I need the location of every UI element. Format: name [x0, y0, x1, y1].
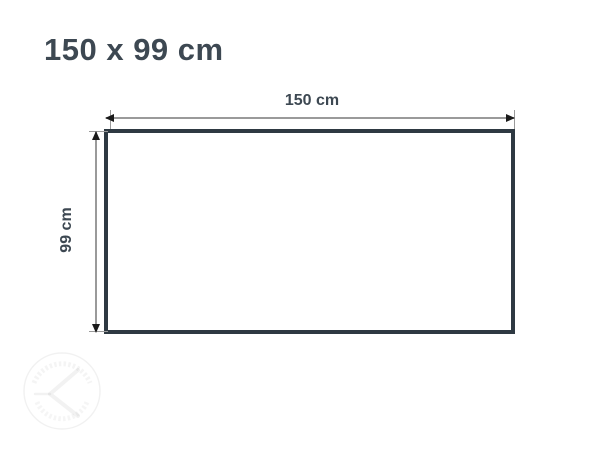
circular-stamp-watermark-icon	[20, 350, 104, 434]
arrowhead-right-icon	[506, 114, 515, 122]
page-title: 150 x 99 cm	[44, 33, 224, 67]
arrowhead-up-icon	[92, 131, 100, 140]
height-dimension-label: 99 cm	[58, 180, 78, 280]
width-dimension-line	[106, 117, 514, 119]
rectangle-shape	[104, 129, 515, 334]
arrowhead-left-icon	[105, 114, 114, 122]
page: 150 x 99 cm 150 cm 99 cm	[0, 0, 607, 455]
width-dimension-label: 150 cm	[110, 92, 514, 110]
height-dimension-line	[95, 132, 97, 332]
arrowhead-down-icon	[92, 324, 100, 333]
